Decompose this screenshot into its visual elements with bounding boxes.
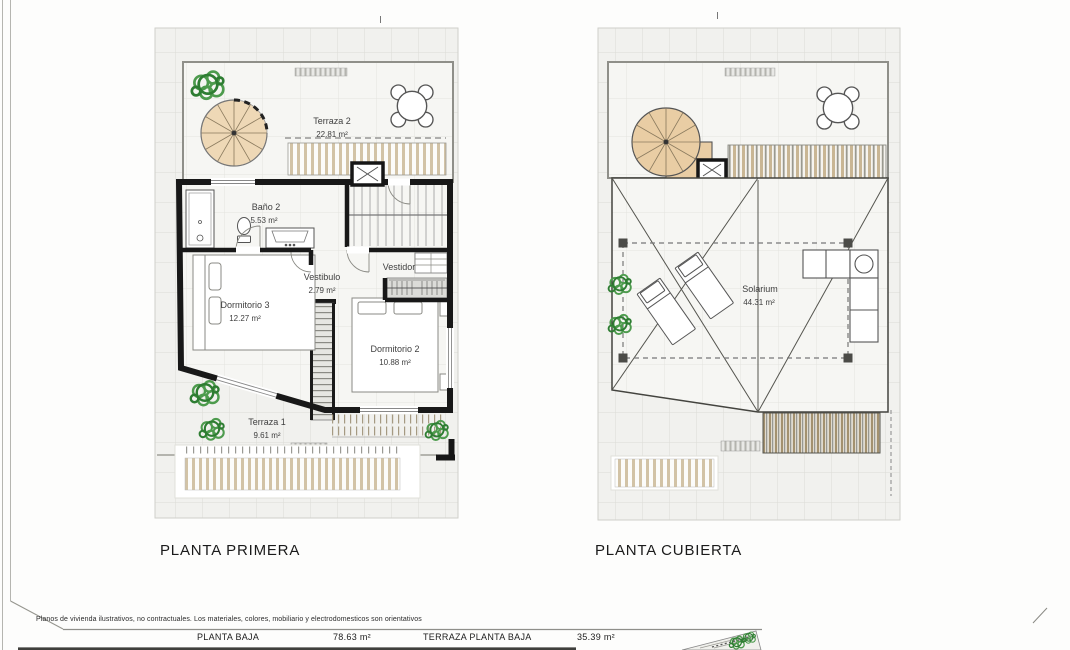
room-label: Terraza 1 — [248, 417, 286, 427]
railing-hatch — [725, 68, 775, 76]
dining-table — [391, 85, 433, 127]
railing-hatch — [295, 68, 347, 76]
room-area: 44.31 m² — [743, 298, 775, 307]
measurement-label: TERRAZA PLANTA BAJA — [423, 632, 532, 642]
disclaimer-text: Planos de vivienda ilustrativos, no cont… — [36, 616, 422, 623]
room-label: Solarium — [742, 284, 778, 294]
lift-shaft — [352, 163, 383, 185]
measurement-value: 78.63 m² — [333, 632, 371, 642]
spiral-staircase — [201, 100, 267, 166]
tick-mark — [717, 12, 718, 19]
floor-plan-planta-primera: Terraza 2 22.81 m² Dormitorio 3 12.27 m² — [148, 22, 464, 522]
measurement-value: 35.39 m² — [577, 632, 615, 642]
room-area: 5.53 m² — [250, 216, 277, 225]
room-area: 9.61 m² — [253, 431, 280, 440]
terrace-2: Terraza 2 22.81 m² — [183, 62, 453, 182]
toilet — [238, 218, 251, 243]
room-area: 22.81 m² — [316, 130, 348, 139]
room-label: Dormitorio 2 — [370, 344, 419, 354]
plan-title-planta-cubierta: PLANTA CUBIERTA — [595, 542, 742, 559]
pergola-slats — [185, 458, 400, 490]
railing-hatch — [721, 441, 760, 451]
room-label: Vestidor — [383, 262, 416, 272]
site-plan-thumbnail — [682, 631, 761, 650]
roof-plan-planta-cubierta: Solarium 44.31 m² — [588, 22, 918, 522]
drawing-sheet: Terraza 2 22.81 m² Dormitorio 3 12.27 m² — [0, 0, 1070, 650]
room-label: Terraza 2 — [313, 116, 351, 126]
room-label: Baño 2 — [252, 202, 281, 212]
lift-shaft — [698, 160, 726, 180]
solarium-roof: Solarium 44.31 m² — [609, 178, 888, 412]
plan-title-planta-primera: PLANTA PRIMERA — [160, 542, 300, 559]
pergola-lower-left — [611, 456, 718, 490]
washbasin — [266, 228, 314, 248]
pergola-slats — [728, 145, 886, 178]
room-area: 10.88 m² — [379, 358, 411, 367]
pergola-slats — [763, 413, 880, 453]
dining-table — [817, 87, 859, 129]
room-area: 2.79 m² — [308, 286, 335, 295]
room-label: Vestibulo — [304, 272, 341, 282]
measurement-label: PLANTA BAJA — [197, 632, 259, 642]
room-label: Dormitorio 3 — [220, 300, 269, 310]
room-area: 12.27 m² — [229, 314, 261, 323]
